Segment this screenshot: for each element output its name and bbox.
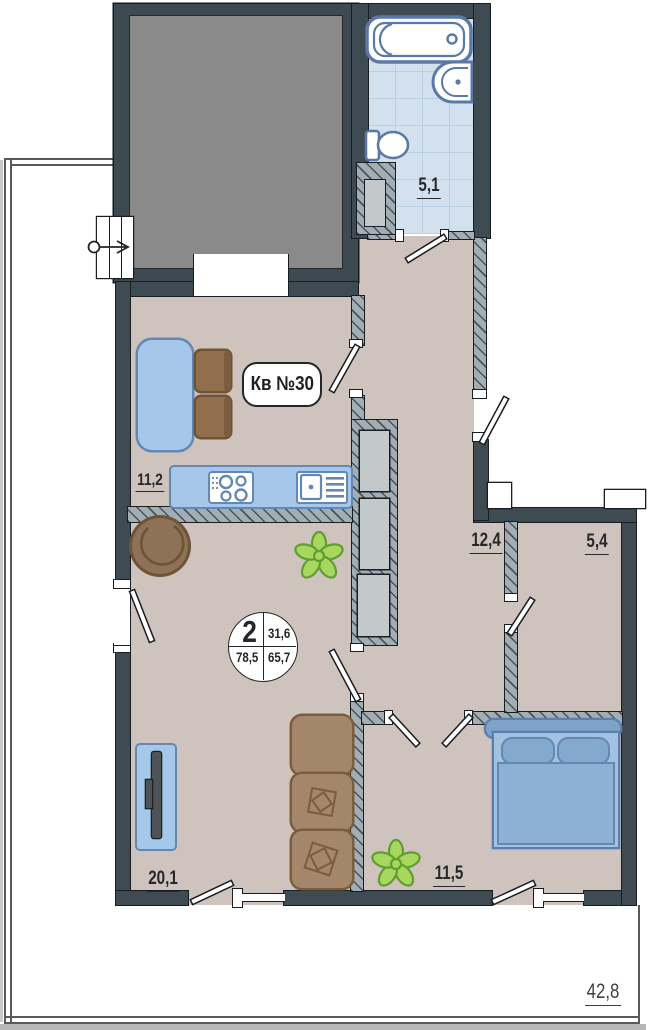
floor-plan: Кв №30 2 31,6 78,5 65,7 5,1 11,2 12,4 5,… [0, 0, 651, 1030]
sofa-motifs [305, 788, 338, 875]
door-terrace-left [133, 593, 151, 639]
door-balcony-bedroom [495, 884, 532, 901]
stove-burners [212, 476, 247, 501]
door-bedroom-left-leaf [393, 718, 416, 743]
stamp-bottom-left: 78,5 [236, 650, 258, 665]
door-storage [511, 601, 531, 632]
armchair-arc [141, 526, 183, 564]
stamp-horizontal-line [229, 646, 296, 647]
label-kitchen-area: 11,2 [136, 470, 165, 490]
plan-overlay [0, 0, 651, 1030]
apartment-number: Кв №30 [250, 373, 313, 396]
label-living-area: 20,1 [147, 868, 180, 890]
label-bedroom-area: 11,5 [433, 863, 465, 885]
door-kitchen [333, 348, 356, 389]
entrance-arrow [89, 241, 129, 253]
label-terrace-area: 42,8 [585, 980, 621, 1004]
toilet [366, 131, 408, 160]
label-bathroom-area: 5,1 [417, 175, 441, 197]
kitchen-sink-details [301, 475, 344, 499]
door-bathroom [409, 238, 443, 259]
bathtub [367, 17, 471, 62]
stamp-bottom-right: 65,7 [268, 650, 290, 665]
plant-living [293, 532, 344, 581]
apartment-badge: Кв №30 [242, 362, 322, 407]
door-living-passage [333, 653, 357, 698]
bathroom-sink [433, 62, 472, 102]
door-balcony-living [194, 884, 230, 901]
door-bedroom-right-leaf [446, 718, 469, 743]
door-apartment-entrance [483, 400, 505, 441]
label-hallway-area: 12,4 [470, 530, 503, 552]
area-stamp: 2 31,6 78,5 65,7 [228, 612, 298, 682]
plant-bedroom [370, 840, 421, 889]
stamp-room-count: 2 [242, 614, 257, 650]
stamp-top-right: 31,6 [268, 626, 290, 641]
label-storage-area: 5,4 [585, 531, 609, 553]
